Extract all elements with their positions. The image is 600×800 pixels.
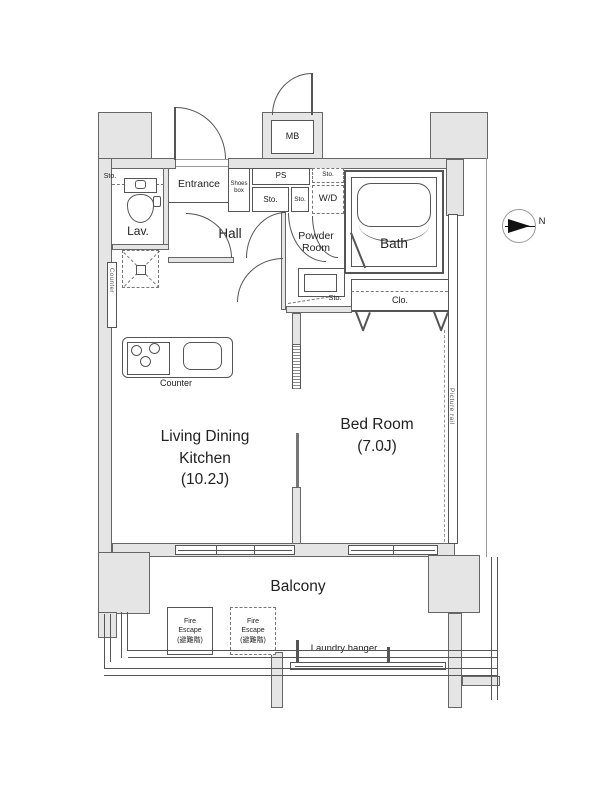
wall-bottomright-pillar [428,555,480,613]
window-mullion [216,546,217,554]
railing-line [127,612,128,651]
entrance-door-leaf [174,107,176,160]
bedroom-label-line2: (7.0J) [357,438,397,455]
bedroom-label-line1: Bed Room [340,416,413,433]
floor-plan: MB Sto. Lav. Entrance Shoes box PS Sto. … [0,0,600,800]
entrance-sill-line [176,166,228,167]
ldk-label-line1: Living Dining [161,428,250,445]
railing-line [121,612,122,658]
sliding-door-panel [296,433,299,487]
stove-burner [131,345,142,356]
entrance-sill-line [176,159,228,160]
fire-escape-line3: (避難階) [177,636,203,645]
fire-escape-hatch: Fire Escape (避難階) [167,607,213,655]
lav-door-arc [186,213,232,258]
meter-box-door-leaf [311,73,313,115]
closet-top-line [351,279,448,280]
partition-hatched-section [292,345,301,389]
window-mullion [393,546,394,554]
bedroom-window [348,545,438,555]
fire-escape-hatch-dashed: Fire Escape (避難階) [230,607,276,655]
railing-line [497,557,498,700]
wall-bottomleft-tail [98,612,117,638]
wall-partition-top [292,313,301,345]
compass-north-label: N [536,216,548,227]
powder-room-label: Powder Room [284,230,348,255]
toilet-flush-button [135,180,146,189]
ldk-label: Living Dining Kitchen (10.2J) [135,426,275,491]
lav-storage-label: Sto. [99,173,121,181]
ldk-window [175,545,295,555]
stove-burner [140,356,151,367]
powder-room-label-line2: Room [302,242,330,254]
entrance-label: Entrance [168,178,230,190]
refrigerator-center-mark [136,265,146,275]
closet-label: Clo. [380,295,420,306]
powder-storage-label: Sto. [324,294,346,303]
bath-label: Bath [366,236,422,252]
picture-rail-dashed [444,330,445,542]
fire-escape-line2: Escape [241,626,264,635]
ldk-label-line2: Kitchen [179,450,231,467]
storage-box-1-label: Sto. [252,195,289,204]
washer-dryer-label: W/D [312,193,344,204]
railing-line [104,614,105,669]
window-mullion [254,546,255,554]
toilet-bowl [127,194,154,223]
pipe-space-label: PS [252,171,310,180]
fire-escape-line3: (避難階) [240,636,266,645]
wall-top-left-block [98,112,152,160]
bathtub [357,183,431,227]
wall-partition-bottom [292,487,301,545]
wall-left [98,158,112,554]
closet-door-mark [362,312,370,331]
closet-left-line [351,279,352,307]
washbasin-bowl [304,274,337,292]
toilet-handle [153,196,161,207]
side-counter-label: Counter [108,268,114,293]
powder-room-label-line1: Powder [298,230,334,242]
fire-escape-line1: Fire [247,617,259,626]
entrance-step-line [169,202,231,203]
closet-shelf-dashed [351,291,448,292]
wall-topright-pillar [430,112,488,159]
wd-storage-label: Sto. [312,171,344,179]
wall-bottomleft-pillar [98,552,150,614]
bedroom-label: Bed Room (7.0J) [312,414,442,457]
wall-bedroom-top [286,306,352,313]
railing-line [128,650,498,651]
balcony-label: Balcony [255,578,341,596]
shoes-box-label: Shoes box [228,181,250,195]
lav-label: Lav. [112,224,164,238]
wall-bottomright-stem [448,613,462,708]
kitchen-sink [183,342,222,370]
wall-bottomright-strip [462,676,500,686]
railing-line [491,557,492,700]
hall-door-arc [246,212,286,258]
railing-line [104,675,498,676]
stove-burner [149,343,160,354]
laundry-hanger-post [296,640,299,664]
railing-line [104,668,498,669]
fire-escape-line2: Escape [178,626,201,635]
compass-arrow [508,219,530,233]
laundry-hanger-bar-line [295,666,443,667]
railing-line [110,614,111,662]
fire-escape-line1: Fire [184,617,196,626]
kitchen-counter-label: Counter [146,378,206,389]
meter-box-door-arc [272,73,312,115]
wall-topright-stem [446,159,464,216]
ldk-door-arc [237,258,283,302]
right-outer-line [486,158,487,557]
meter-box-label: MB [271,131,314,142]
laundry-hanger-label: Laundry hanger [303,643,385,654]
ldk-label-line3: (10.2J) [181,471,229,488]
balcony-center-post [271,652,283,708]
storage-box-2-label: Sto. [291,196,309,204]
window-center-line [178,550,292,551]
railing-line [128,657,498,658]
entrance-door-arc [176,107,226,159]
shoes-box-label-line1: Shoes [230,181,247,187]
shoes-box-label-line2: box [234,188,244,194]
picture-rail-label: Picture rail [448,388,455,425]
wall-bedroom-right [448,214,458,544]
